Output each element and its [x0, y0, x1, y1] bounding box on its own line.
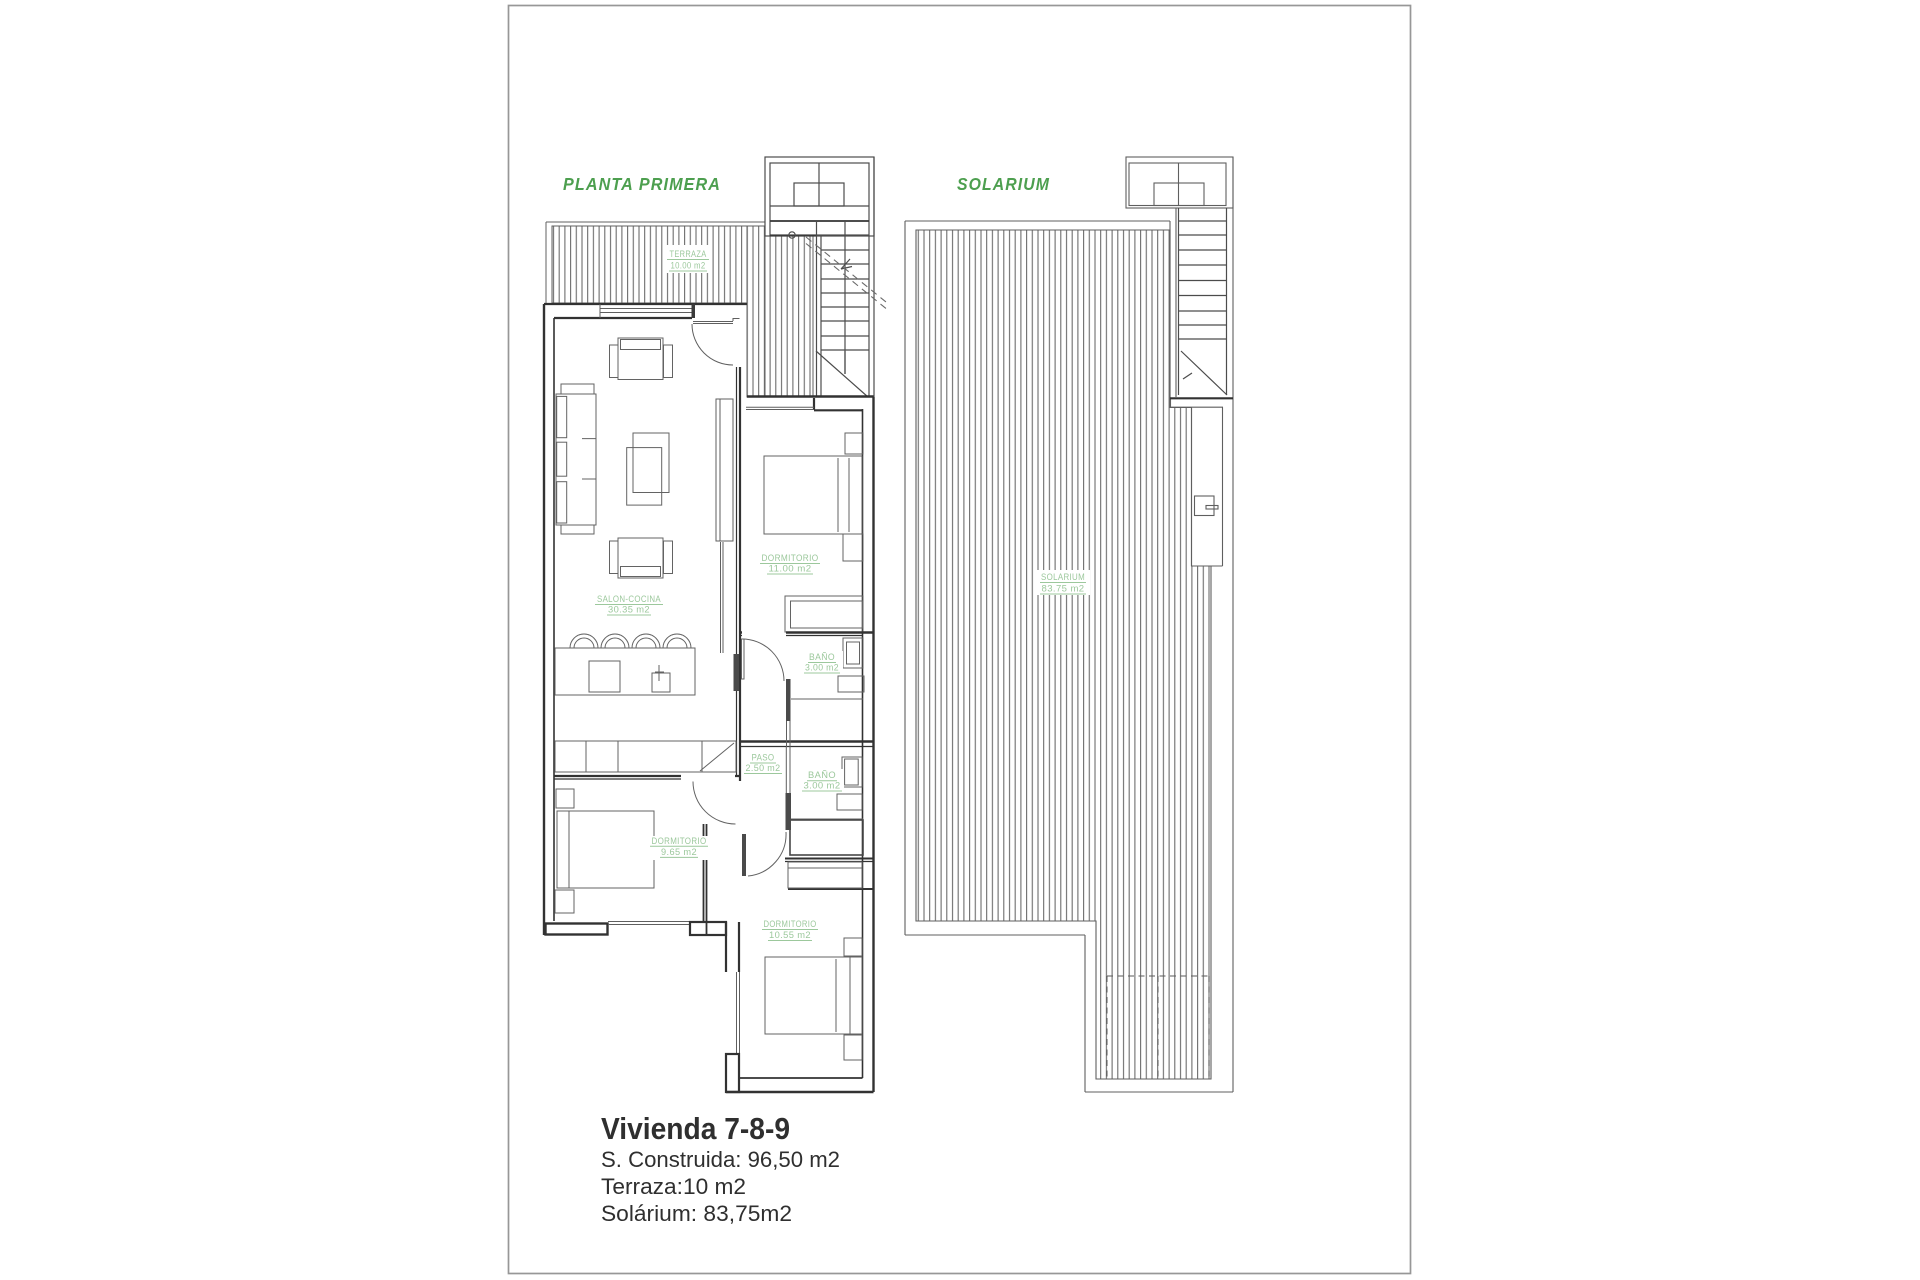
svg-text:S. Construida: 96,50 m2: S. Construida: 96,50 m2 — [601, 1147, 840, 1172]
svg-text:Vivienda 7-8-9: Vivienda 7-8-9 — [601, 1111, 790, 1146]
svg-text:DORMITORIO: DORMITORIO — [764, 919, 817, 930]
svg-text:3.00 m2: 3.00 m2 — [804, 781, 841, 792]
svg-text:30.35 m2: 30.35 m2 — [608, 605, 650, 616]
svg-text:PASO: PASO — [752, 753, 775, 764]
svg-text:9.65 m2: 9.65 m2 — [661, 847, 697, 858]
svg-text:Terraza:10 m2: Terraza:10 m2 — [601, 1174, 746, 1199]
svg-text:SOLARIUM: SOLARIUM — [957, 174, 1050, 194]
svg-text:DORMITORIO: DORMITORIO — [652, 836, 707, 847]
svg-text:83.75 m2: 83.75 m2 — [1042, 584, 1085, 595]
svg-text:SALON-COCINA: SALON-COCINA — [597, 594, 661, 605]
svg-text:PLANTA PRIMERA: PLANTA PRIMERA — [563, 174, 721, 194]
svg-text:11.00 m2: 11.00 m2 — [769, 564, 812, 575]
svg-text:2.50 m2: 2.50 m2 — [746, 763, 781, 774]
svg-text:BAÑO: BAÑO — [809, 652, 835, 663]
svg-text:BAÑO: BAÑO — [808, 770, 836, 781]
svg-text:3.00 m2: 3.00 m2 — [805, 663, 839, 674]
svg-text:10.00 m2: 10.00 m2 — [671, 261, 706, 272]
svg-text:TERRAZA: TERRAZA — [670, 249, 707, 260]
svg-text:DORMITORIO: DORMITORIO — [762, 553, 819, 564]
svg-text:10.55 m2: 10.55 m2 — [769, 930, 811, 941]
svg-text:SOLARIUM: SOLARIUM — [1041, 572, 1085, 583]
svg-text:Solárium: 83,75m2: Solárium: 83,75m2 — [601, 1201, 792, 1226]
